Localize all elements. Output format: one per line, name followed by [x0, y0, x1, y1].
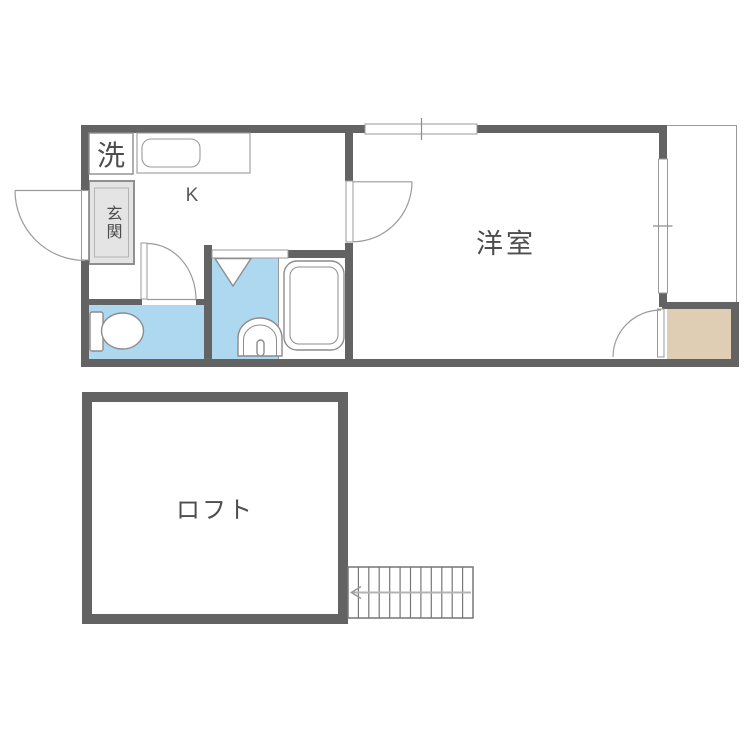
floorplan-canvas: 洗 玄関 K 洋室 ロフト	[0, 0, 750, 750]
wall-closet-top	[662, 302, 739, 309]
loft-wall-right	[338, 392, 348, 624]
loft-wall-left	[82, 392, 92, 624]
washer-label: 洗	[89, 133, 133, 174]
sliding-window-top	[365, 118, 477, 140]
kitchen-counter	[137, 133, 250, 173]
balcony	[667, 126, 737, 303]
bathtub	[284, 261, 344, 350]
entrance-label: 玄関	[89, 183, 134, 262]
wall-top-left	[81, 125, 365, 133]
wall-top-right	[477, 125, 667, 133]
toilet	[90, 312, 144, 351]
floorplan-drawing	[0, 0, 750, 750]
kitchen-door	[346, 181, 412, 242]
wall-toilet-top-right	[196, 299, 204, 305]
wall-bath-left	[204, 245, 212, 359]
loft-wall-bottom	[82, 614, 348, 624]
wall-left-upper	[81, 125, 89, 190]
kitchen-label: K	[177, 183, 207, 209]
loft-wall-top	[82, 392, 348, 402]
wall-bottom	[81, 359, 739, 367]
toilet-bowl	[102, 313, 144, 349]
kitchen-sink	[142, 139, 200, 167]
wash-basin	[238, 318, 282, 356]
loft-label: ロフト	[153, 490, 277, 524]
entrance-door	[15, 191, 89, 261]
wall-bath-top	[288, 250, 345, 258]
wall-toilet-top-left	[89, 299, 142, 305]
western-room-label: 洋室	[446, 224, 566, 258]
basin-faucet	[257, 340, 264, 356]
closet-door	[613, 309, 664, 357]
wall-partition-lower	[345, 243, 353, 359]
sliding-window-right	[653, 159, 673, 293]
wall-partition-upper	[345, 133, 353, 181]
wall-right-top-stub	[659, 125, 667, 159]
toilet-door	[141, 243, 196, 300]
wall-closet-right	[731, 302, 739, 367]
closet	[667, 309, 731, 359]
staircase	[348, 567, 473, 618]
wall-left-lower	[81, 260, 89, 367]
